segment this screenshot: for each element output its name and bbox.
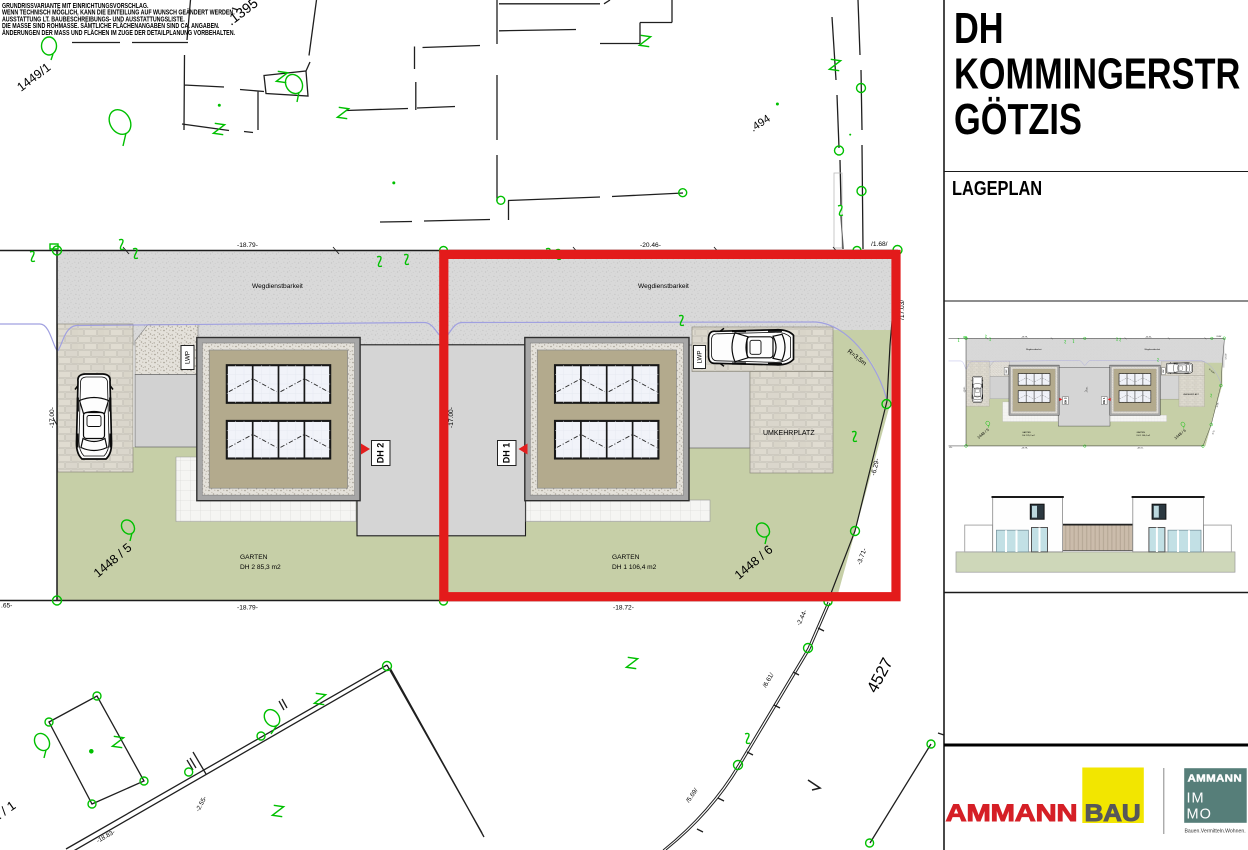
svg-text:-17.00-: -17.00- (448, 407, 455, 428)
svg-text:.65-: .65- (1, 603, 12, 610)
svg-text:Wegdienstbarkeit: Wegdienstbarkeit (638, 283, 689, 290)
svg-text:DH: DH (954, 5, 1004, 53)
svg-text:ÄNDERUNGEN DER MASS UND FLÄCHE: ÄNDERUNGEN DER MASS UND FLÄCHEN IM ZUGE … (2, 29, 235, 37)
svg-text:4527: 4527 (864, 655, 897, 696)
svg-text:-20.46-: -20.46- (640, 242, 661, 249)
svg-text:/5.69/: /5.69/ (685, 787, 700, 804)
svg-text:1449/1: 1449/1 (14, 60, 53, 94)
svg-text:AMMANN: AMMANN (946, 799, 1078, 826)
svg-text:-18.79-: -18.79- (237, 605, 258, 612)
svg-text:Wegdienstbarkeit: Wegdienstbarkeit (252, 283, 303, 290)
svg-text:UMKEHRPLATZ: UMKEHRPLATZ (763, 430, 815, 437)
svg-text:DH 1: DH 1 (502, 443, 512, 464)
svg-text:-3.71-: -3.71- (856, 547, 868, 566)
svg-text:GARTEN: GARTEN (612, 554, 640, 561)
svg-text:2 / 1: 2 / 1 (0, 798, 18, 825)
svg-text:/1.68/: /1.68/ (871, 241, 888, 248)
svg-text:-18.79-: -18.79- (237, 242, 258, 249)
svg-text:-17.00-: -17.00- (49, 407, 56, 428)
svg-text:LWP: LWP (185, 351, 192, 364)
svg-text:Bauen.Vermitteln.Wohnen.: Bauen.Vermitteln.Wohnen. (1185, 828, 1246, 834)
svg-text:-2.55-: -2.55- (195, 795, 209, 813)
svg-text:GARTEN: GARTEN (240, 554, 268, 561)
svg-text:DH 2: DH 2 (376, 443, 386, 464)
svg-text:-18.72-: -18.72- (613, 605, 634, 612)
svg-text:LAGEPLAN: LAGEPLAN (952, 176, 1042, 199)
svg-text:.494: .494 (748, 113, 773, 135)
svg-text:.1395: .1395 (223, 0, 261, 28)
svg-text:AMMANN: AMMANN (1188, 773, 1242, 784)
svg-text:GÖTZIS: GÖTZIS (954, 96, 1082, 144)
svg-text:/6.61/: /6.61/ (762, 672, 776, 689)
svg-text:-2.44-: -2.44- (795, 609, 808, 627)
svg-text:KOMMINGERSTR: KOMMINGERSTR (954, 51, 1240, 99)
svg-text:MO: MO (1187, 807, 1212, 823)
svg-text:BAU: BAU (1085, 800, 1141, 827)
svg-text:IM: IM (1187, 791, 1205, 807)
svg-text:LWP: LWP (697, 351, 704, 364)
svg-text:DH 2 85,3 m2: DH 2 85,3 m2 (240, 564, 281, 571)
svg-text:-18.83-: -18.83- (96, 829, 117, 845)
svg-text:DH 1 106,4 m2: DH 1 106,4 m2 (612, 564, 657, 571)
